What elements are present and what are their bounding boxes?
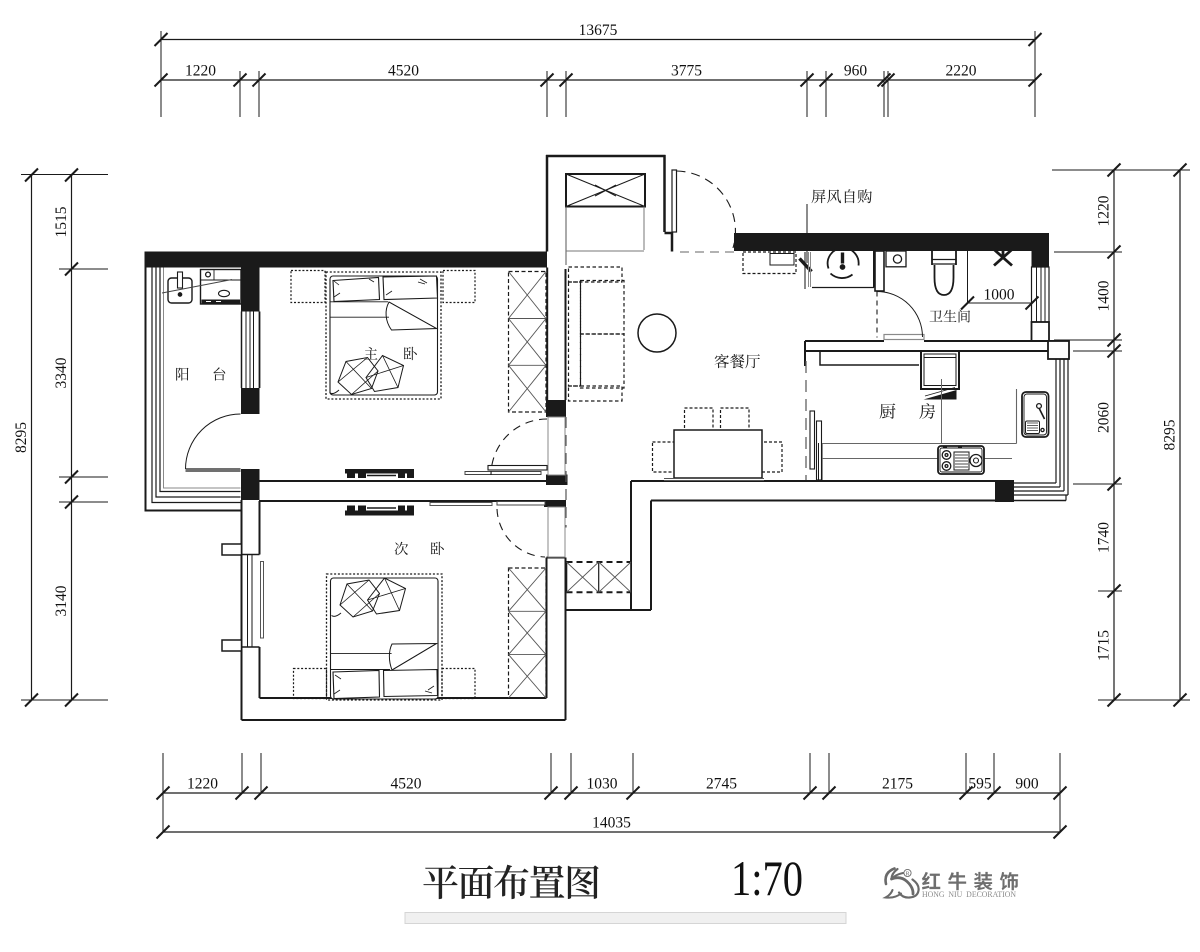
svg-text:3775: 3775 [671,63,702,80]
svg-text:13675: 13675 [579,22,618,39]
svg-text:960: 960 [844,63,868,80]
svg-text:R: R [905,872,909,878]
svg-text:2175: 2175 [882,776,913,793]
svg-text:1220: 1220 [185,63,216,80]
svg-text:1220: 1220 [187,776,218,793]
svg-text:1000: 1000 [984,287,1015,304]
svg-text:3340: 3340 [53,357,70,388]
svg-text:1515: 1515 [53,206,70,237]
svg-text:2060: 2060 [1096,402,1113,433]
svg-text:4520: 4520 [388,63,419,80]
svg-text:2220: 2220 [946,63,977,80]
svg-text:1715: 1715 [1096,630,1113,661]
svg-text:1220: 1220 [1096,195,1113,226]
svg-text:3140: 3140 [53,585,70,616]
svg-text:4520: 4520 [391,776,422,793]
svg-text:1740: 1740 [1096,522,1113,553]
svg-text:1030: 1030 [587,776,618,793]
svg-text:900: 900 [1015,776,1039,793]
svg-text:1:70: 1:70 [731,850,803,906]
svg-text:8295: 8295 [13,422,30,453]
svg-text:HONG NIU DECORATION: HONG NIU DECORATION [922,890,1016,899]
svg-text:14035: 14035 [592,815,631,832]
svg-text:1400: 1400 [1096,280,1113,311]
svg-text:2745: 2745 [706,776,737,793]
svg-text:595: 595 [968,776,992,793]
svg-text:8295: 8295 [1162,419,1179,450]
